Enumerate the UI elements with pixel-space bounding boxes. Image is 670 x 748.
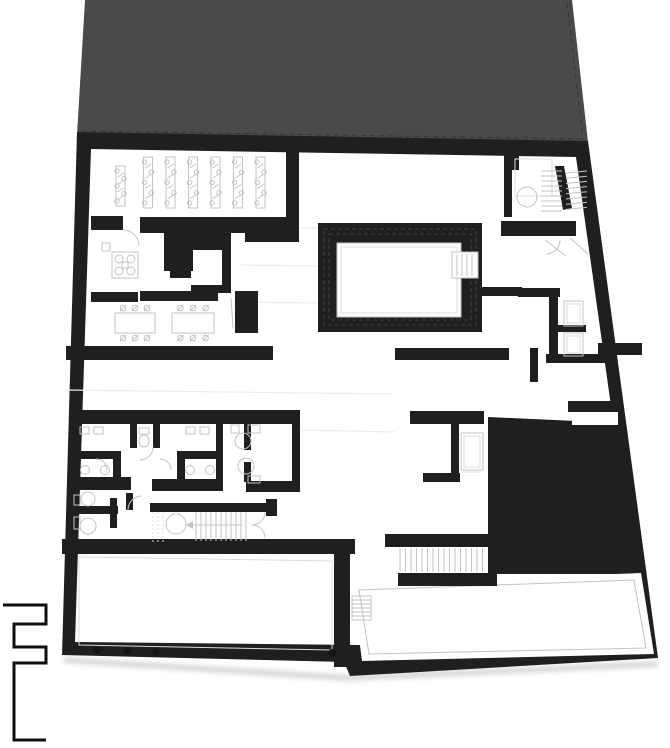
elevator-wall — [451, 423, 459, 477]
hall-wall — [334, 539, 350, 667]
corridor-wall — [395, 348, 509, 360]
wall — [140, 291, 218, 301]
elevator-wall — [423, 473, 460, 482]
corridor-wall — [410, 411, 484, 424]
wall — [546, 354, 612, 363]
terrace — [352, 573, 654, 661]
floor-plan-page — [0, 0, 670, 748]
wall — [245, 229, 299, 242]
pool-steps — [452, 252, 478, 278]
floor-plan-canvas — [0, 0, 670, 748]
mass-notch — [572, 411, 618, 425]
wall — [91, 216, 123, 230]
corridor-wall — [66, 346, 273, 360]
swimming-pool — [318, 223, 482, 332]
terrace-access-stair — [352, 596, 371, 620]
corridor-wall — [70, 410, 300, 424]
wall — [598, 343, 642, 355]
wall — [91, 292, 138, 302]
site-boundary-step-marker — [3, 605, 46, 740]
wall — [480, 287, 522, 296]
stair-wall — [266, 499, 277, 516]
hall-wall — [62, 539, 355, 554]
pool-basin — [337, 243, 461, 317]
wall-block — [235, 291, 258, 333]
wall — [530, 348, 538, 382]
roof-mass — [77, 0, 588, 142]
stair-wall — [150, 503, 270, 512]
